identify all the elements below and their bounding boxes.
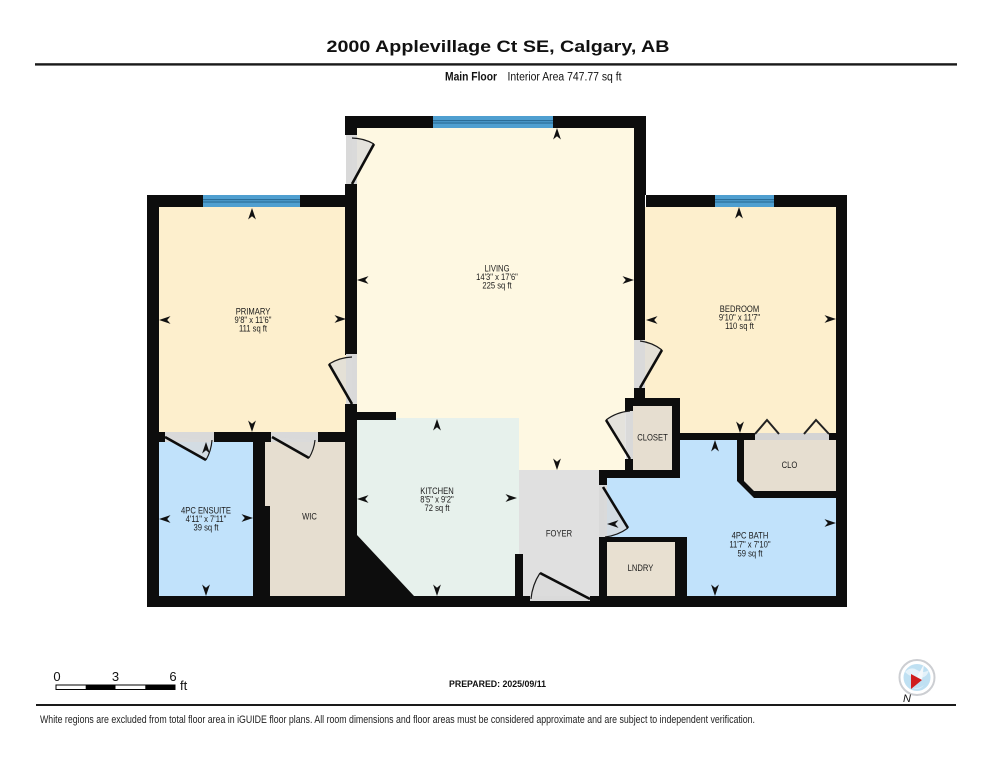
svg-text:PREPARED: 2025/09/11: PREPARED: 2025/09/11 [449, 679, 547, 690]
svg-text:CLO: CLO [782, 460, 798, 470]
svg-text:ft: ft [180, 678, 188, 693]
svg-text:59 sq ft: 59 sq ft [738, 549, 763, 559]
svg-text:0: 0 [53, 669, 60, 684]
svg-text:3: 3 [112, 669, 119, 684]
svg-text:Main Floor: Main Floor [445, 72, 497, 84]
svg-text:39 sq ft: 39 sq ft [194, 523, 219, 533]
svg-text:WIC: WIC [302, 512, 317, 522]
svg-text:72 sq ft: 72 sq ft [425, 503, 450, 513]
svg-text:225 sq ft: 225 sq ft [482, 281, 512, 291]
svg-text:White regions are excluded fro: White regions are excluded from total fl… [40, 714, 755, 726]
svg-text:FOYER: FOYER [546, 529, 572, 539]
svg-text:N: N [903, 693, 911, 705]
svg-text:111 sq ft: 111 sq ft [239, 324, 267, 334]
svg-text:6: 6 [169, 669, 176, 684]
svg-text:2000 Applevillage Ct SE, Calga: 2000 Applevillage Ct SE, Calgary, AB [327, 38, 670, 56]
svg-text:LNDRY: LNDRY [628, 563, 654, 573]
svg-text:110 sq ft: 110 sq ft [725, 321, 754, 331]
svg-text:CLOSET: CLOSET [637, 433, 668, 443]
svg-text:Interior Area 747.77 sq ft: Interior Area 747.77 sq ft [508, 72, 623, 84]
